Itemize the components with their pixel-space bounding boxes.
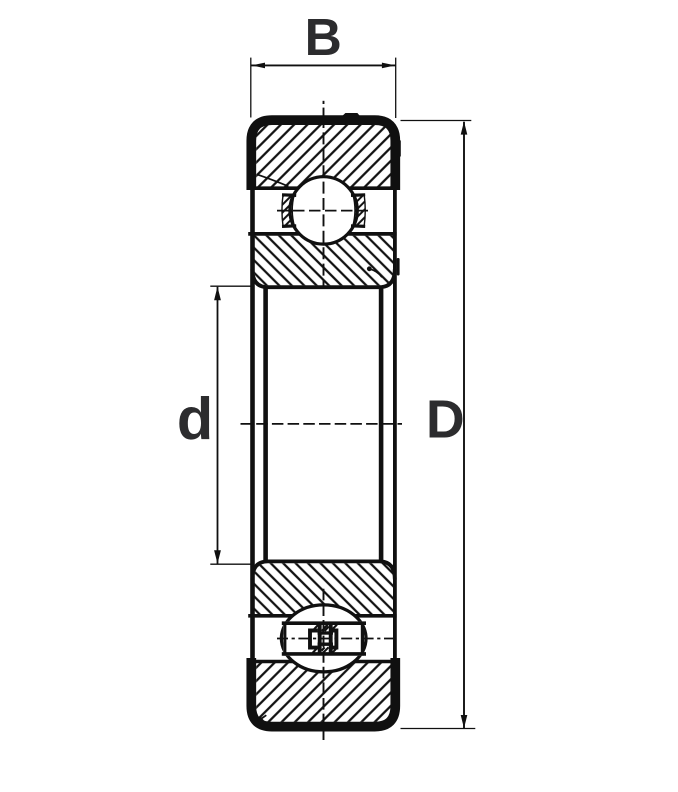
svg-text:d: d bbox=[177, 385, 213, 452]
svg-text:D: D bbox=[426, 390, 465, 449]
svg-text:B: B bbox=[305, 8, 342, 66]
